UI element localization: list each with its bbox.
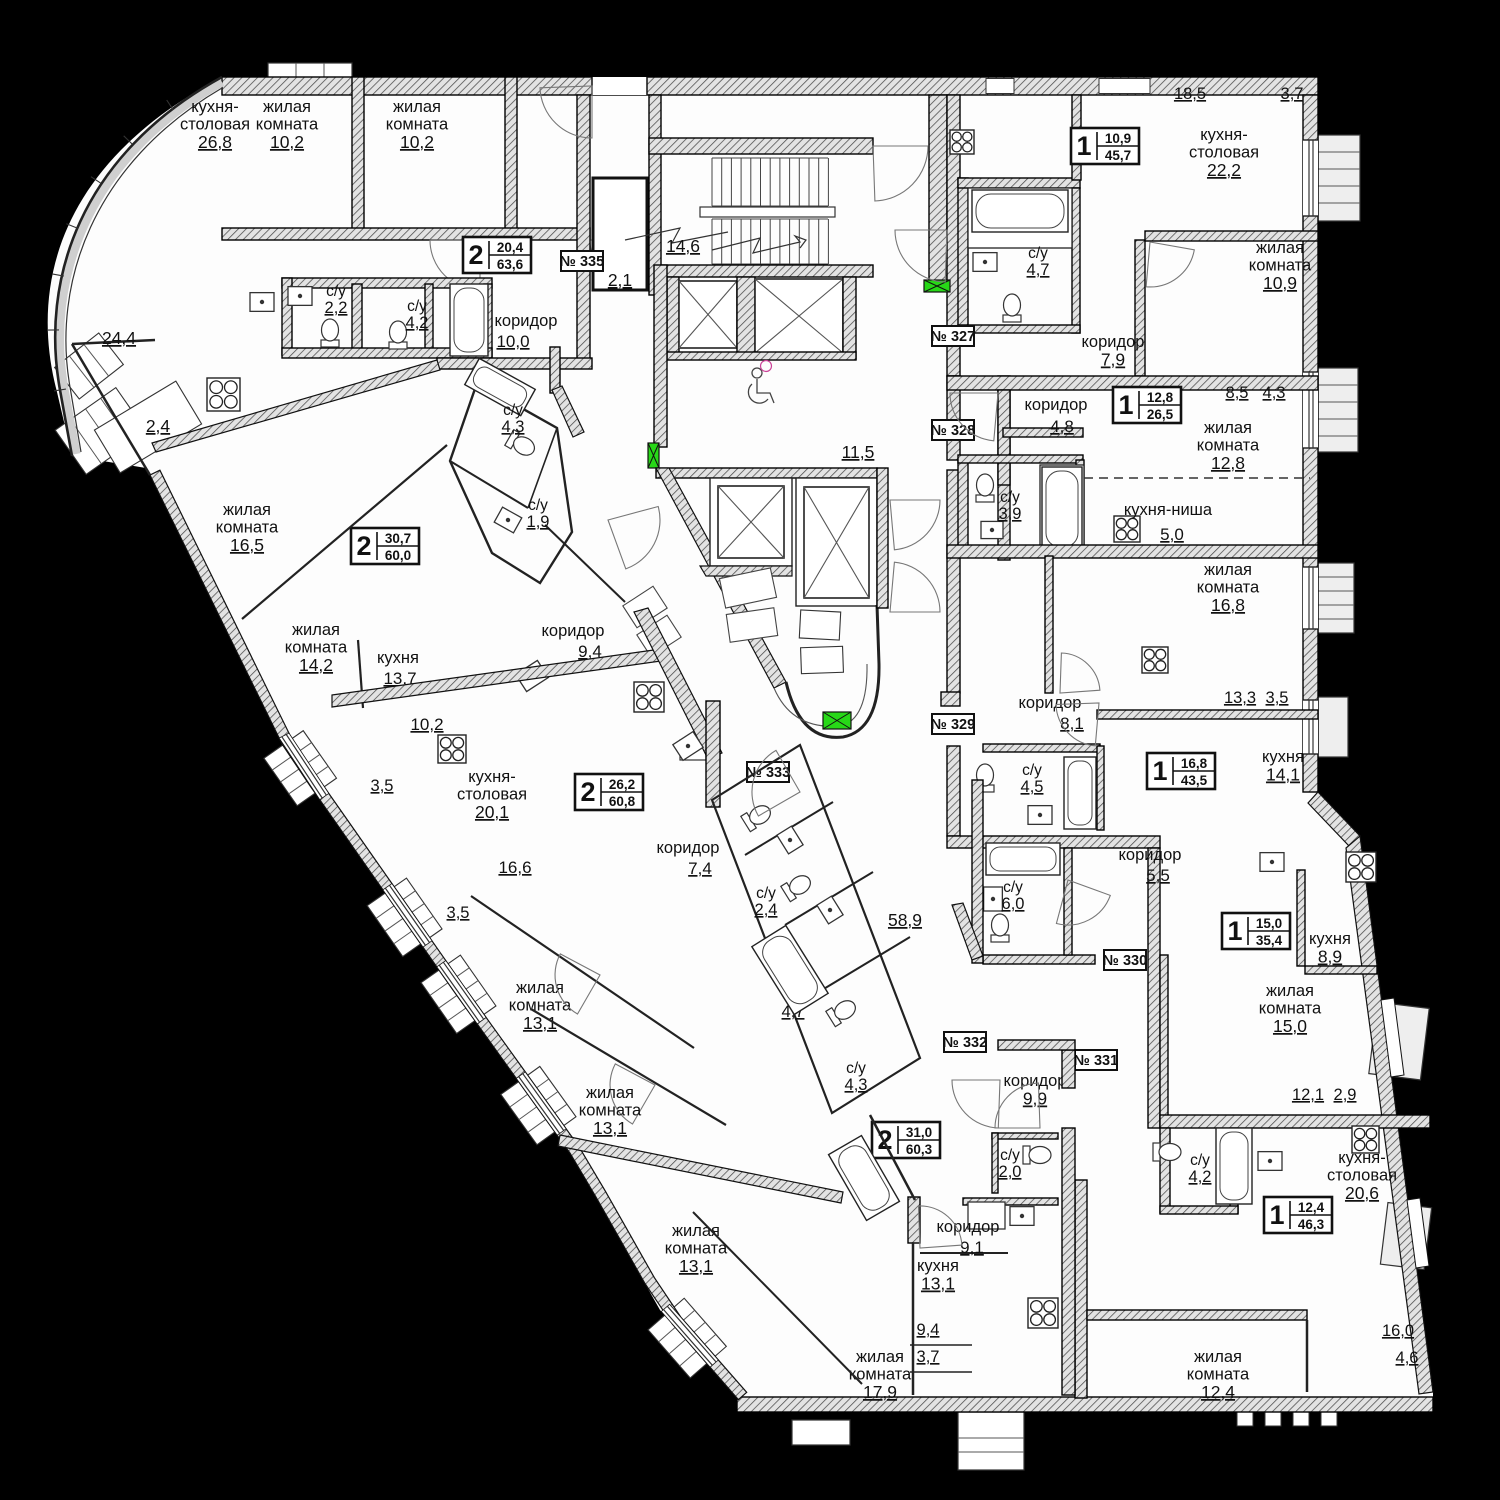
svg-text:46,3: 46,3 [1298,1217,1325,1232]
svg-text:жилая: жилая [1194,1348,1242,1366]
svg-text:кухня-ниша: кухня-ниша [1124,501,1213,519]
svg-text:26,8: 26,8 [198,132,232,152]
svg-text:31,0: 31,0 [906,1125,932,1140]
svg-text:2: 2 [356,531,371,561]
svg-text:комната: комната [1187,1366,1250,1384]
svg-text:16,5: 16,5 [230,535,264,555]
svg-text:4,5: 4,5 [1021,778,1044,796]
svg-text:12,8: 12,8 [1211,453,1245,473]
svg-text:коридор: коридор [542,622,605,640]
svg-text:1: 1 [1152,756,1167,786]
svg-text:17,9: 17,9 [863,1382,897,1402]
svg-text:9,9: 9,9 [1023,1089,1047,1109]
svg-text:коридор: коридор [495,312,558,330]
svg-text:кухня: кухня [1262,748,1304,766]
svg-text:11,5: 11,5 [842,442,875,462]
svg-text:15,0: 15,0 [1273,1016,1307,1036]
svg-text:кухня-: кухня- [191,98,238,116]
svg-text:4,3: 4,3 [1263,384,1286,402]
svg-text:9,1: 9,1 [960,1238,984,1257]
svg-text:10,0: 10,0 [496,332,529,351]
svg-text:жилая: жилая [1204,561,1252,579]
svg-text:22,2: 22,2 [1207,160,1241,180]
svg-text:с/у: с/у [1028,245,1048,262]
svg-text:15,0: 15,0 [1256,916,1282,931]
svg-text:16,8: 16,8 [1181,756,1208,771]
svg-text:10,9: 10,9 [1263,273,1297,293]
svg-text:1: 1 [1076,131,1091,161]
svg-text:26,5: 26,5 [1147,407,1174,422]
svg-text:14,6: 14,6 [666,236,700,256]
svg-text:комната: комната [285,639,348,657]
svg-text:24,4: 24,4 [102,328,136,348]
svg-text:14,1: 14,1 [1266,765,1300,785]
svg-text:4,3: 4,3 [845,1076,868,1094]
svg-text:4,2: 4,2 [406,314,429,332]
svg-text:12,4: 12,4 [1201,1382,1235,1402]
svg-text:18,5: 18,5 [1174,85,1206,103]
svg-text:8,9: 8,9 [1318,947,1342,967]
svg-text:3,5: 3,5 [447,904,470,922]
svg-text:коридор: коридор [1004,1072,1067,1090]
svg-text:1,9: 1,9 [527,513,550,531]
svg-text:2,9: 2,9 [1334,1086,1357,1104]
svg-text:комната: комната [579,1102,642,1120]
svg-text:35,4: 35,4 [1256,933,1283,948]
svg-text:60,0: 60,0 [385,548,411,563]
svg-text:58,9: 58,9 [888,910,922,930]
svg-text:2: 2 [877,1125,892,1155]
svg-text:3,5: 3,5 [1266,689,1289,707]
svg-text:жилая: жилая [1266,982,1314,1000]
svg-text:4,2: 4,2 [1189,1168,1212,1186]
svg-text:14,2: 14,2 [299,655,333,675]
svg-text:коридор: коридор [1082,333,1145,351]
svg-text:8,1: 8,1 [1060,714,1084,733]
svg-text:жилая: жилая [223,501,271,519]
svg-text:8,5: 8,5 [1226,384,1249,402]
svg-text:45,7: 45,7 [1105,148,1131,163]
svg-text:20,6: 20,6 [1345,1183,1379,1203]
svg-text:2,4: 2,4 [146,416,171,436]
svg-text:с/у: с/у [1000,489,1020,506]
svg-text:комната: комната [1259,1000,1322,1018]
svg-text:с/у: с/у [846,1060,866,1077]
svg-text:№ 329: № 329 [931,717,975,733]
svg-text:3,7: 3,7 [1281,85,1304,103]
svg-text:№ 332: № 332 [943,1035,987,1051]
svg-text:16,6: 16,6 [498,858,531,877]
svg-text:2,0: 2,0 [999,1163,1022,1181]
svg-text:16,0: 16,0 [1382,1322,1414,1340]
svg-text:13,1: 13,1 [523,1013,557,1033]
svg-text:кухня: кухня [1309,930,1351,948]
svg-text:12,1: 12,1 [1292,1086,1324,1104]
svg-text:№ 333: № 333 [746,765,790,781]
svg-text:комната: комната [1249,257,1312,275]
svg-text:столовая: столовая [457,786,527,804]
svg-text:комната: комната [1197,579,1260,597]
svg-text:№ 335: № 335 [560,254,604,270]
svg-text:4,8: 4,8 [1050,417,1074,436]
svg-text:комната: комната [256,116,319,134]
svg-text:комната: комната [386,116,449,134]
svg-text:жилая: жилая [393,98,441,116]
svg-text:10,2: 10,2 [270,132,304,152]
svg-text:6,0: 6,0 [1002,895,1025,913]
svg-text:с/у: с/у [756,885,776,902]
svg-text:13,1: 13,1 [679,1256,713,1276]
svg-text:кухня: кухня [917,1257,959,1275]
svg-text:коридор: коридор [1119,846,1182,864]
svg-text:с/у: с/у [407,298,427,315]
svg-text:5,5: 5,5 [1146,866,1170,885]
svg-text:№ 331: № 331 [1074,1053,1118,1069]
svg-text:3,9: 3,9 [999,505,1022,523]
svg-text:жилая: жилая [1256,239,1304,257]
svg-text:2: 2 [468,240,483,270]
svg-text:2,1: 2,1 [608,270,632,290]
svg-text:комната: комната [665,1240,728,1258]
svg-text:2,2: 2,2 [325,299,348,317]
svg-text:комната: комната [1197,437,1260,455]
svg-text:13,1: 13,1 [921,1274,955,1294]
svg-text:2: 2 [580,777,595,807]
svg-text:столовая: столовая [180,116,250,134]
svg-text:12,8: 12,8 [1147,390,1174,405]
svg-text:1: 1 [1118,390,1133,420]
svg-text:жилая: жилая [1204,419,1252,437]
svg-text:жилая: жилая [263,98,311,116]
svg-text:кухня-: кухня- [468,768,515,786]
svg-text:3,5: 3,5 [371,777,394,795]
svg-text:16,8: 16,8 [1211,595,1245,615]
svg-text:коридор: коридор [937,1218,1000,1236]
svg-text:20,4: 20,4 [497,240,524,255]
svg-text:№ 327: № 327 [931,329,975,345]
svg-text:столовая: столовая [1327,1167,1397,1185]
svg-text:с/у: с/у [1022,762,1042,779]
svg-text:26,2: 26,2 [609,777,635,792]
svg-text:с/у: с/у [1190,1152,1210,1169]
svg-text:с/у: с/у [326,283,346,300]
svg-text:13,1: 13,1 [593,1118,627,1138]
svg-text:60,8: 60,8 [609,794,636,809]
svg-text:коридор: коридор [657,839,720,857]
svg-text:жилая: жилая [586,1084,634,1102]
svg-text:63,6: 63,6 [497,257,524,272]
svg-text:4,6: 4,6 [1396,1349,1419,1367]
svg-text:кухня-: кухня- [1200,126,1247,144]
svg-text:3,7: 3,7 [917,1348,940,1366]
svg-text:столовая: столовая [1189,144,1259,162]
svg-text:коридор: коридор [1025,396,1088,414]
svg-text:2,4: 2,4 [755,901,778,919]
svg-text:7,9: 7,9 [1101,350,1125,370]
svg-text:13,3: 13,3 [1224,689,1256,707]
svg-text:10,2: 10,2 [410,715,443,734]
svg-text:№ 330: № 330 [1103,953,1147,969]
svg-text:комната: комната [216,519,279,537]
svg-text:43,5: 43,5 [1181,773,1208,788]
svg-text:с/у: с/у [503,402,523,419]
svg-text:7,4: 7,4 [688,859,712,878]
svg-text:1: 1 [1227,916,1242,946]
svg-text:10,9: 10,9 [1105,131,1131,146]
svg-text:4,3: 4,3 [502,418,525,436]
svg-text:коридор: коридор [1019,694,1082,712]
svg-text:5,0: 5,0 [1160,525,1184,544]
svg-text:9,4: 9,4 [917,1321,940,1339]
svg-text:с/у: с/у [1003,879,1023,896]
svg-text:кухня: кухня [377,649,419,667]
svg-text:жилая: жилая [856,1348,904,1366]
svg-text:30,7: 30,7 [385,531,411,546]
svg-text:12,4: 12,4 [1298,1200,1325,1215]
svg-text:4,7: 4,7 [1027,261,1050,279]
svg-text:с/у: с/у [1000,1147,1020,1164]
svg-text:60,3: 60,3 [906,1142,933,1157]
svg-text:1: 1 [1269,1200,1284,1230]
svg-text:с/у: с/у [528,497,548,514]
svg-text:20,1: 20,1 [475,802,509,822]
svg-text:жилая: жилая [292,621,340,639]
svg-text:10,2: 10,2 [400,132,434,152]
